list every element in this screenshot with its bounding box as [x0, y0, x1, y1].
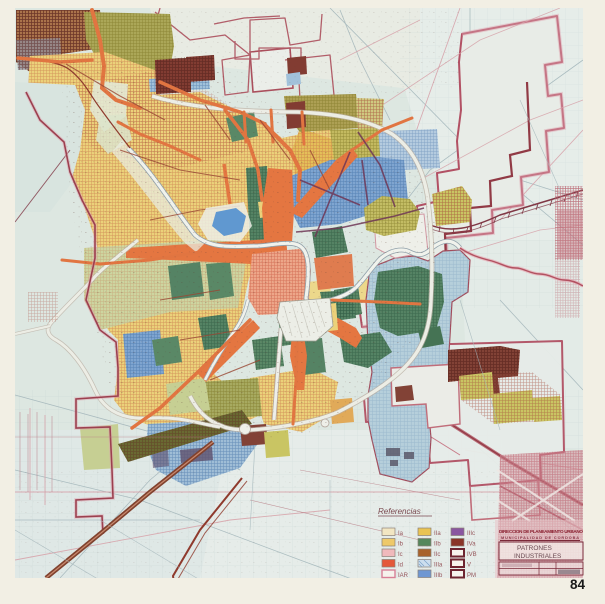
svg-text:84: 84: [570, 577, 586, 592]
svg-text:Id: Id: [398, 563, 403, 569]
svg-text:Ic: Ic: [398, 552, 403, 558]
svg-text:DIRECCION DE PLANEAMIENTO URBA: DIRECCION DE PLANEAMIENTO URBANO: [499, 529, 583, 534]
svg-text:IIIb: IIIb: [434, 573, 443, 579]
svg-text:IIb: IIb: [434, 542, 441, 548]
svg-text:IVa: IVa: [467, 542, 476, 548]
svg-text:Ib: Ib: [398, 542, 404, 548]
svg-text:IIc: IIc: [434, 552, 440, 558]
svg-text:V: V: [467, 563, 471, 569]
svg-text:INDUSTRIALES: INDUSTRIALES: [514, 553, 562, 560]
svg-text:IIa: IIa: [434, 531, 441, 537]
svg-text:PM: PM: [467, 573, 476, 579]
svg-text:IAR: IAR: [398, 573, 409, 579]
svg-text:Ia: Ia: [398, 531, 404, 537]
svg-text:IVB: IVB: [467, 552, 477, 558]
svg-text:MUNICIPALIDAD DE CORDOBA: MUNICIPALIDAD DE CORDOBA: [501, 536, 579, 540]
svg-text:IIIc: IIIc: [467, 531, 475, 537]
svg-text:PATRONES: PATRONES: [517, 545, 552, 552]
svg-text:IIIa: IIIa: [434, 563, 443, 569]
svg-text:Referencias: Referencias: [378, 507, 421, 516]
